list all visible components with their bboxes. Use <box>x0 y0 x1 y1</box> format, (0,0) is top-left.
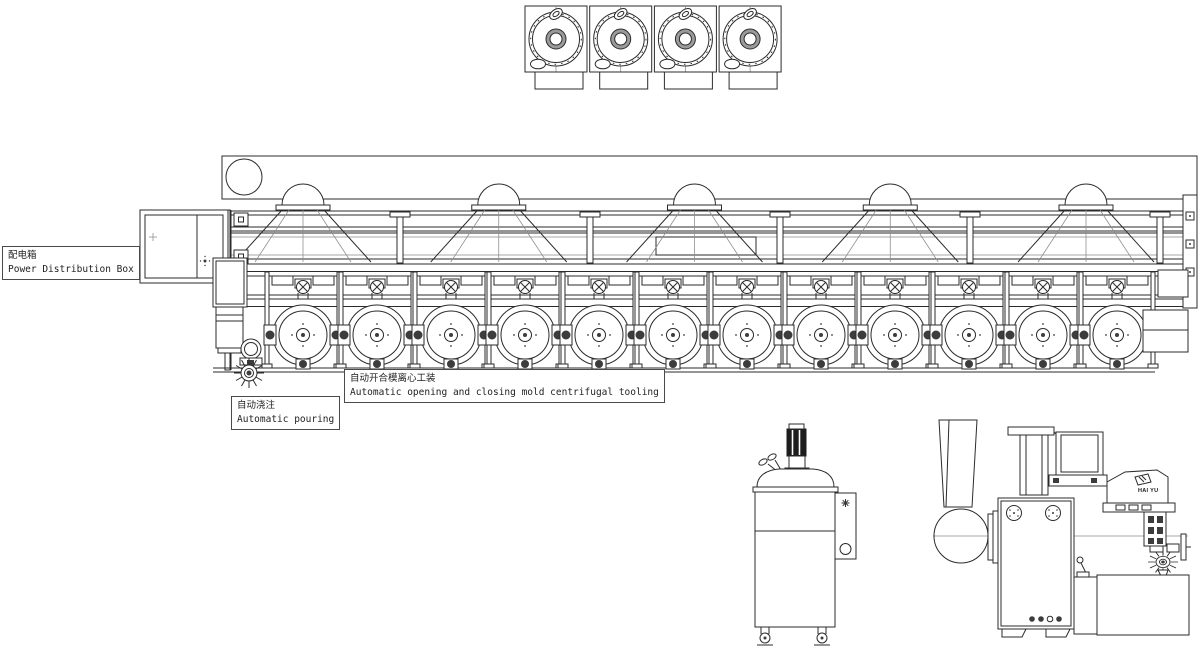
mid-box <box>1074 577 1097 634</box>
chain-conveyor-top <box>228 264 1188 272</box>
top-unit <box>590 6 652 89</box>
agitator-motor <box>787 429 806 456</box>
main-cabinet <box>998 498 1074 629</box>
beam-access-panel <box>656 237 756 255</box>
elevator-column <box>1020 435 1048 495</box>
hopper-box <box>1056 432 1103 475</box>
top-unit <box>654 6 716 89</box>
top-unit <box>719 6 781 89</box>
tooling-label: 自动开合模离心工装 Automatic opening and closing … <box>344 369 665 403</box>
robot-pouring-machine: HAI YU <box>933 420 1191 637</box>
mold-stations <box>262 272 1158 369</box>
station <box>336 272 418 369</box>
caster-left <box>757 627 773 645</box>
power-box-label-zh: 配电箱 <box>8 249 134 263</box>
station <box>1002 272 1084 369</box>
station <box>706 272 788 369</box>
feed-box <box>213 258 247 307</box>
vent-fan-icon <box>842 499 850 507</box>
tooling-label-en: Automatic opening and closing mold centr… <box>350 386 659 400</box>
tank-dome-lid <box>757 469 834 487</box>
brand-label: HAI YU <box>1138 488 1158 494</box>
station <box>854 272 936 369</box>
station <box>780 272 862 369</box>
pour-motor <box>216 307 243 348</box>
pouring-label-zh: 自动浇注 <box>237 399 334 413</box>
tooling-label-zh: 自动开合模离心工装 <box>350 372 659 386</box>
top-plate <box>1008 427 1054 435</box>
station <box>262 272 344 369</box>
caster-right <box>814 627 830 645</box>
station <box>410 272 492 369</box>
tank-machine <box>753 424 856 645</box>
pouring-label: 自动浇注 Automatic pouring <box>231 396 340 430</box>
top-unit <box>525 6 587 89</box>
top-view-units <box>525 6 781 89</box>
side-bracket <box>1167 544 1179 552</box>
machine-drawing: HAI YU <box>0 0 1200 646</box>
station <box>484 272 566 369</box>
arm-rail <box>1103 503 1175 512</box>
station <box>632 272 714 369</box>
power-box-label: 配电箱 Power Distribution Box <box>2 246 140 280</box>
engineering-drawing-canvas: HAI YU 配电箱 Power Distribution Box 自动开 <box>0 0 1200 646</box>
station <box>928 272 1010 369</box>
control-head <box>1107 470 1168 503</box>
station <box>558 272 640 369</box>
power-box-label-en: Power Distribution Box <box>8 263 134 277</box>
tank-body <box>755 492 835 627</box>
lower-right-box <box>1097 575 1189 635</box>
chimney <box>939 420 977 507</box>
pouring-label-en: Automatic pouring <box>237 413 334 427</box>
